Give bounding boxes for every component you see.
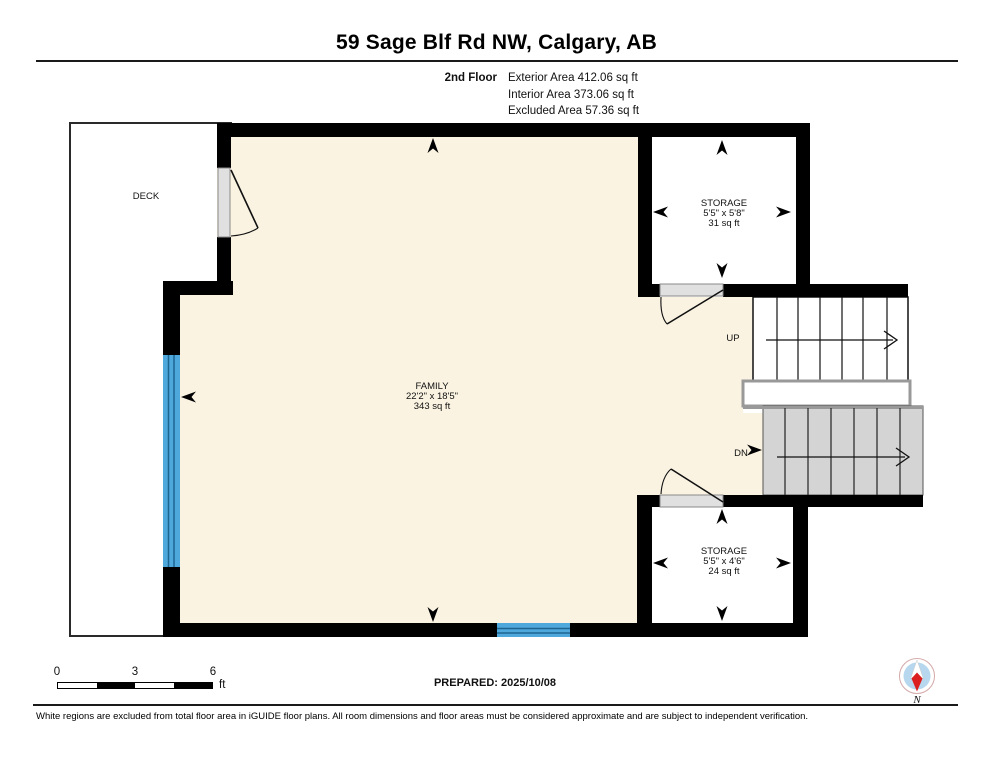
storage-bottom-dim-arrow-up xyxy=(717,509,728,524)
family-room-label: FAMILY 22'2" x 18'5" 343 sq ft xyxy=(362,382,502,412)
scale-tick-3: 3 xyxy=(124,666,146,678)
storage-top-dim-arrow-down xyxy=(717,263,728,278)
stairs-down xyxy=(743,406,923,495)
scale-bar xyxy=(57,682,213,689)
storage-top-area: 31 sq ft xyxy=(654,219,794,229)
stairs-up xyxy=(753,297,908,382)
stairs-up-label: UP xyxy=(713,334,753,344)
scale-segment xyxy=(58,683,97,688)
deck-label: DECK xyxy=(96,192,196,202)
bottom-window xyxy=(497,623,570,637)
disclaimer-text: White regions are excluded from total fl… xyxy=(36,711,956,722)
scale-tick-0: 0 xyxy=(46,666,68,678)
storage-bottom-dim-arrow-down xyxy=(717,606,728,621)
floorplan-page: 59 Sage Blf Rd NW, Calgary, AB 2nd Floor… xyxy=(0,0,993,768)
family-room-area: 343 sq ft xyxy=(362,402,502,412)
scale-segment xyxy=(135,683,174,688)
prepared-date: PREPARED: 2025/10/08 xyxy=(395,677,595,689)
compass-icon xyxy=(900,659,935,694)
storage-top-label: STORAGE 5'5" x 5'8" 31 sq ft xyxy=(654,199,794,229)
scale-segment xyxy=(97,683,136,688)
stair-railing xyxy=(743,381,910,406)
scale-tick-6: 6 xyxy=(202,666,224,678)
storage-bottom-label: STORAGE 5'5" x 4'6" 24 sq ft xyxy=(654,547,794,577)
storage-bottom-area: 24 sq ft xyxy=(654,567,794,577)
storage-top-dim-arrow-up xyxy=(717,140,728,155)
left-window xyxy=(163,355,180,567)
scale-segment xyxy=(174,683,213,688)
stairs-down-label: DN xyxy=(721,449,761,459)
scale-unit: ft xyxy=(219,679,225,691)
disclaimer-divider xyxy=(33,704,958,706)
